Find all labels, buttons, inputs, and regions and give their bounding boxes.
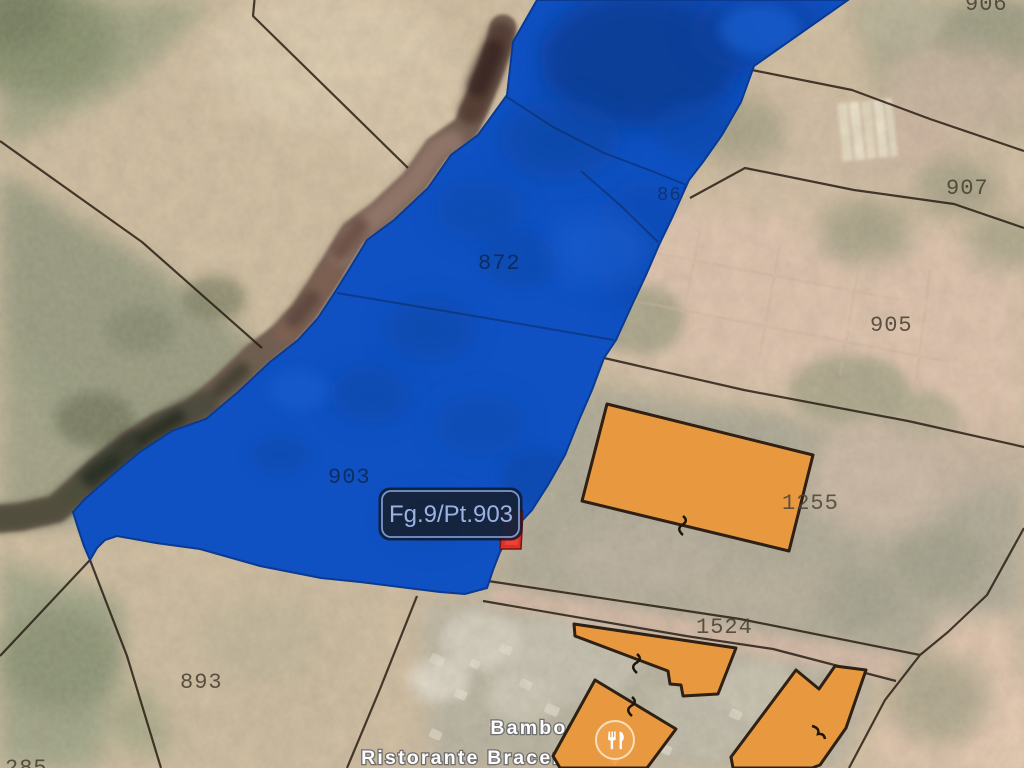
svg-text:1524: 1524	[696, 615, 753, 640]
svg-text:893: 893	[180, 670, 223, 695]
svg-text:1255: 1255	[782, 491, 839, 516]
svg-text:285: 285	[5, 756, 48, 768]
svg-text:906: 906	[965, 0, 1008, 17]
svg-text:903: 903	[328, 465, 371, 490]
svg-text:907: 907	[946, 176, 989, 201]
svg-text:872: 872	[478, 251, 521, 276]
svg-text:Fg.9/Pt.903: Fg.9/Pt.903	[389, 501, 513, 528]
svg-text:905: 905	[870, 313, 913, 338]
svg-text:Ristorante Braceria: Ristorante Braceria	[361, 747, 583, 768]
